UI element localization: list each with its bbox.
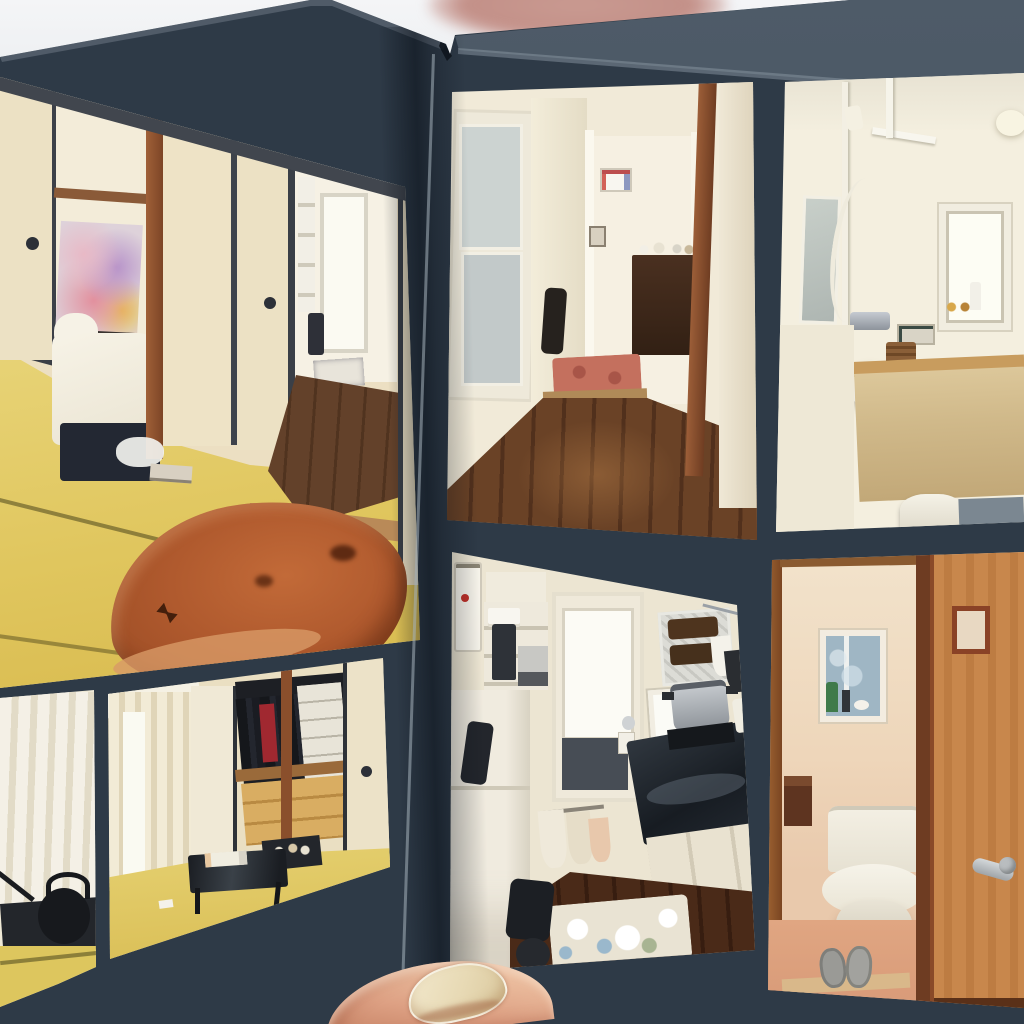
table-knot bbox=[255, 575, 273, 587]
towel-cream bbox=[538, 809, 569, 869]
magazine bbox=[149, 464, 192, 484]
dark-bag-floor bbox=[505, 878, 555, 942]
right-wall bbox=[719, 78, 757, 508]
pot-handle bbox=[726, 686, 738, 694]
white-tray bbox=[205, 851, 248, 868]
cast-iron-teapot bbox=[38, 888, 90, 944]
bathtub-panel bbox=[854, 367, 1024, 502]
photo-curtain-teapot bbox=[0, 688, 98, 1010]
door-handle-rosette bbox=[999, 857, 1016, 874]
pot-handle bbox=[662, 692, 674, 700]
dark-bottle bbox=[842, 690, 850, 712]
green-bottle bbox=[826, 682, 838, 712]
dresser-items bbox=[635, 240, 695, 256]
fusuma-door-left bbox=[0, 75, 56, 360]
dark-boots bbox=[308, 313, 324, 355]
photo-bedroom-tatami bbox=[0, 75, 422, 693]
wooden-drawers bbox=[241, 775, 354, 846]
table-knot bbox=[330, 545, 356, 561]
photo-kitchen bbox=[450, 550, 757, 972]
coffee-maker bbox=[492, 624, 516, 680]
door-picture-frame bbox=[952, 606, 990, 654]
sill-items bbox=[944, 302, 974, 312]
fusuma-door-mid bbox=[237, 120, 292, 450]
upper-cabinet bbox=[486, 572, 546, 605]
album-book bbox=[0, 0, 1024, 1024]
table-leg bbox=[195, 888, 200, 914]
white-basin bbox=[732, 697, 759, 734]
toilet-paper-holder bbox=[784, 776, 812, 826]
photo-hallway bbox=[447, 80, 757, 542]
photo-of-photo-album bbox=[0, 0, 1024, 1024]
fusuma-door bbox=[343, 660, 393, 860]
fusuma-handle bbox=[26, 237, 39, 250]
small-wall-frame bbox=[589, 226, 606, 247]
bath-stool bbox=[900, 494, 964, 534]
foil-dark-panel bbox=[669, 642, 716, 665]
ceiling-light bbox=[996, 110, 1024, 136]
ceiling-pipe-vertical bbox=[886, 70, 893, 138]
photo-toilet-room bbox=[766, 548, 1024, 1010]
fusuma-handle bbox=[361, 766, 372, 777]
plastic-bag bbox=[116, 437, 164, 467]
fusuma-handle bbox=[264, 297, 276, 309]
doorframe-top-strip bbox=[780, 553, 920, 567]
photo-closet-room bbox=[105, 652, 395, 962]
white-dish bbox=[854, 700, 869, 710]
door-knob bbox=[622, 716, 635, 730]
white-dishes bbox=[488, 608, 520, 624]
toilet-tank bbox=[828, 806, 922, 872]
faucet-chrome bbox=[850, 312, 890, 330]
lower-left-wall bbox=[774, 325, 854, 535]
towel-peach bbox=[588, 817, 612, 863]
dark-bag bbox=[541, 287, 568, 354]
grey-floor-corner bbox=[958, 497, 1024, 536]
photo-bathroom bbox=[774, 70, 1024, 535]
cream-wall bbox=[163, 111, 231, 446]
closet-center-pillar bbox=[281, 662, 292, 854]
intercom-panel bbox=[600, 168, 632, 192]
hall-window-door bbox=[320, 193, 368, 353]
toaster-oven bbox=[518, 646, 548, 686]
hall-shelf-column bbox=[298, 177, 315, 312]
thumb bbox=[323, 953, 558, 1024]
floral-mat bbox=[547, 894, 692, 970]
floor-sheen bbox=[517, 420, 677, 530]
wood-pillar bbox=[146, 107, 163, 459]
